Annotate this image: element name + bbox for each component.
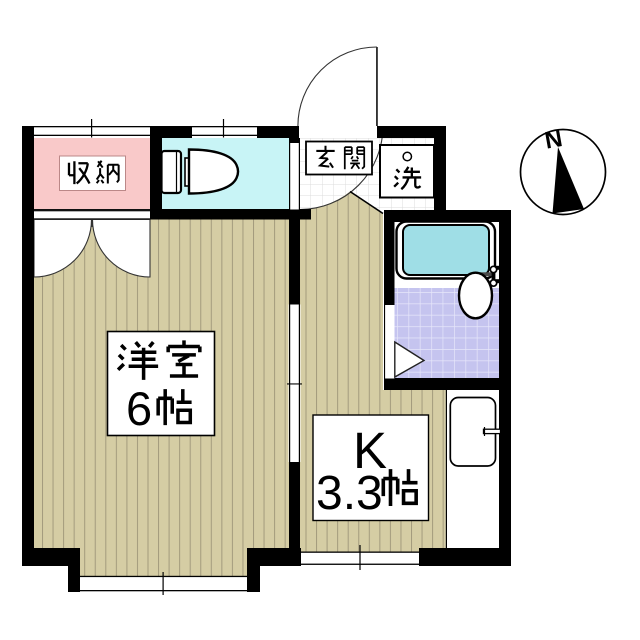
svg-text:3.3: 3.3 <box>316 467 383 520</box>
svg-text:6: 6 <box>126 382 152 435</box>
